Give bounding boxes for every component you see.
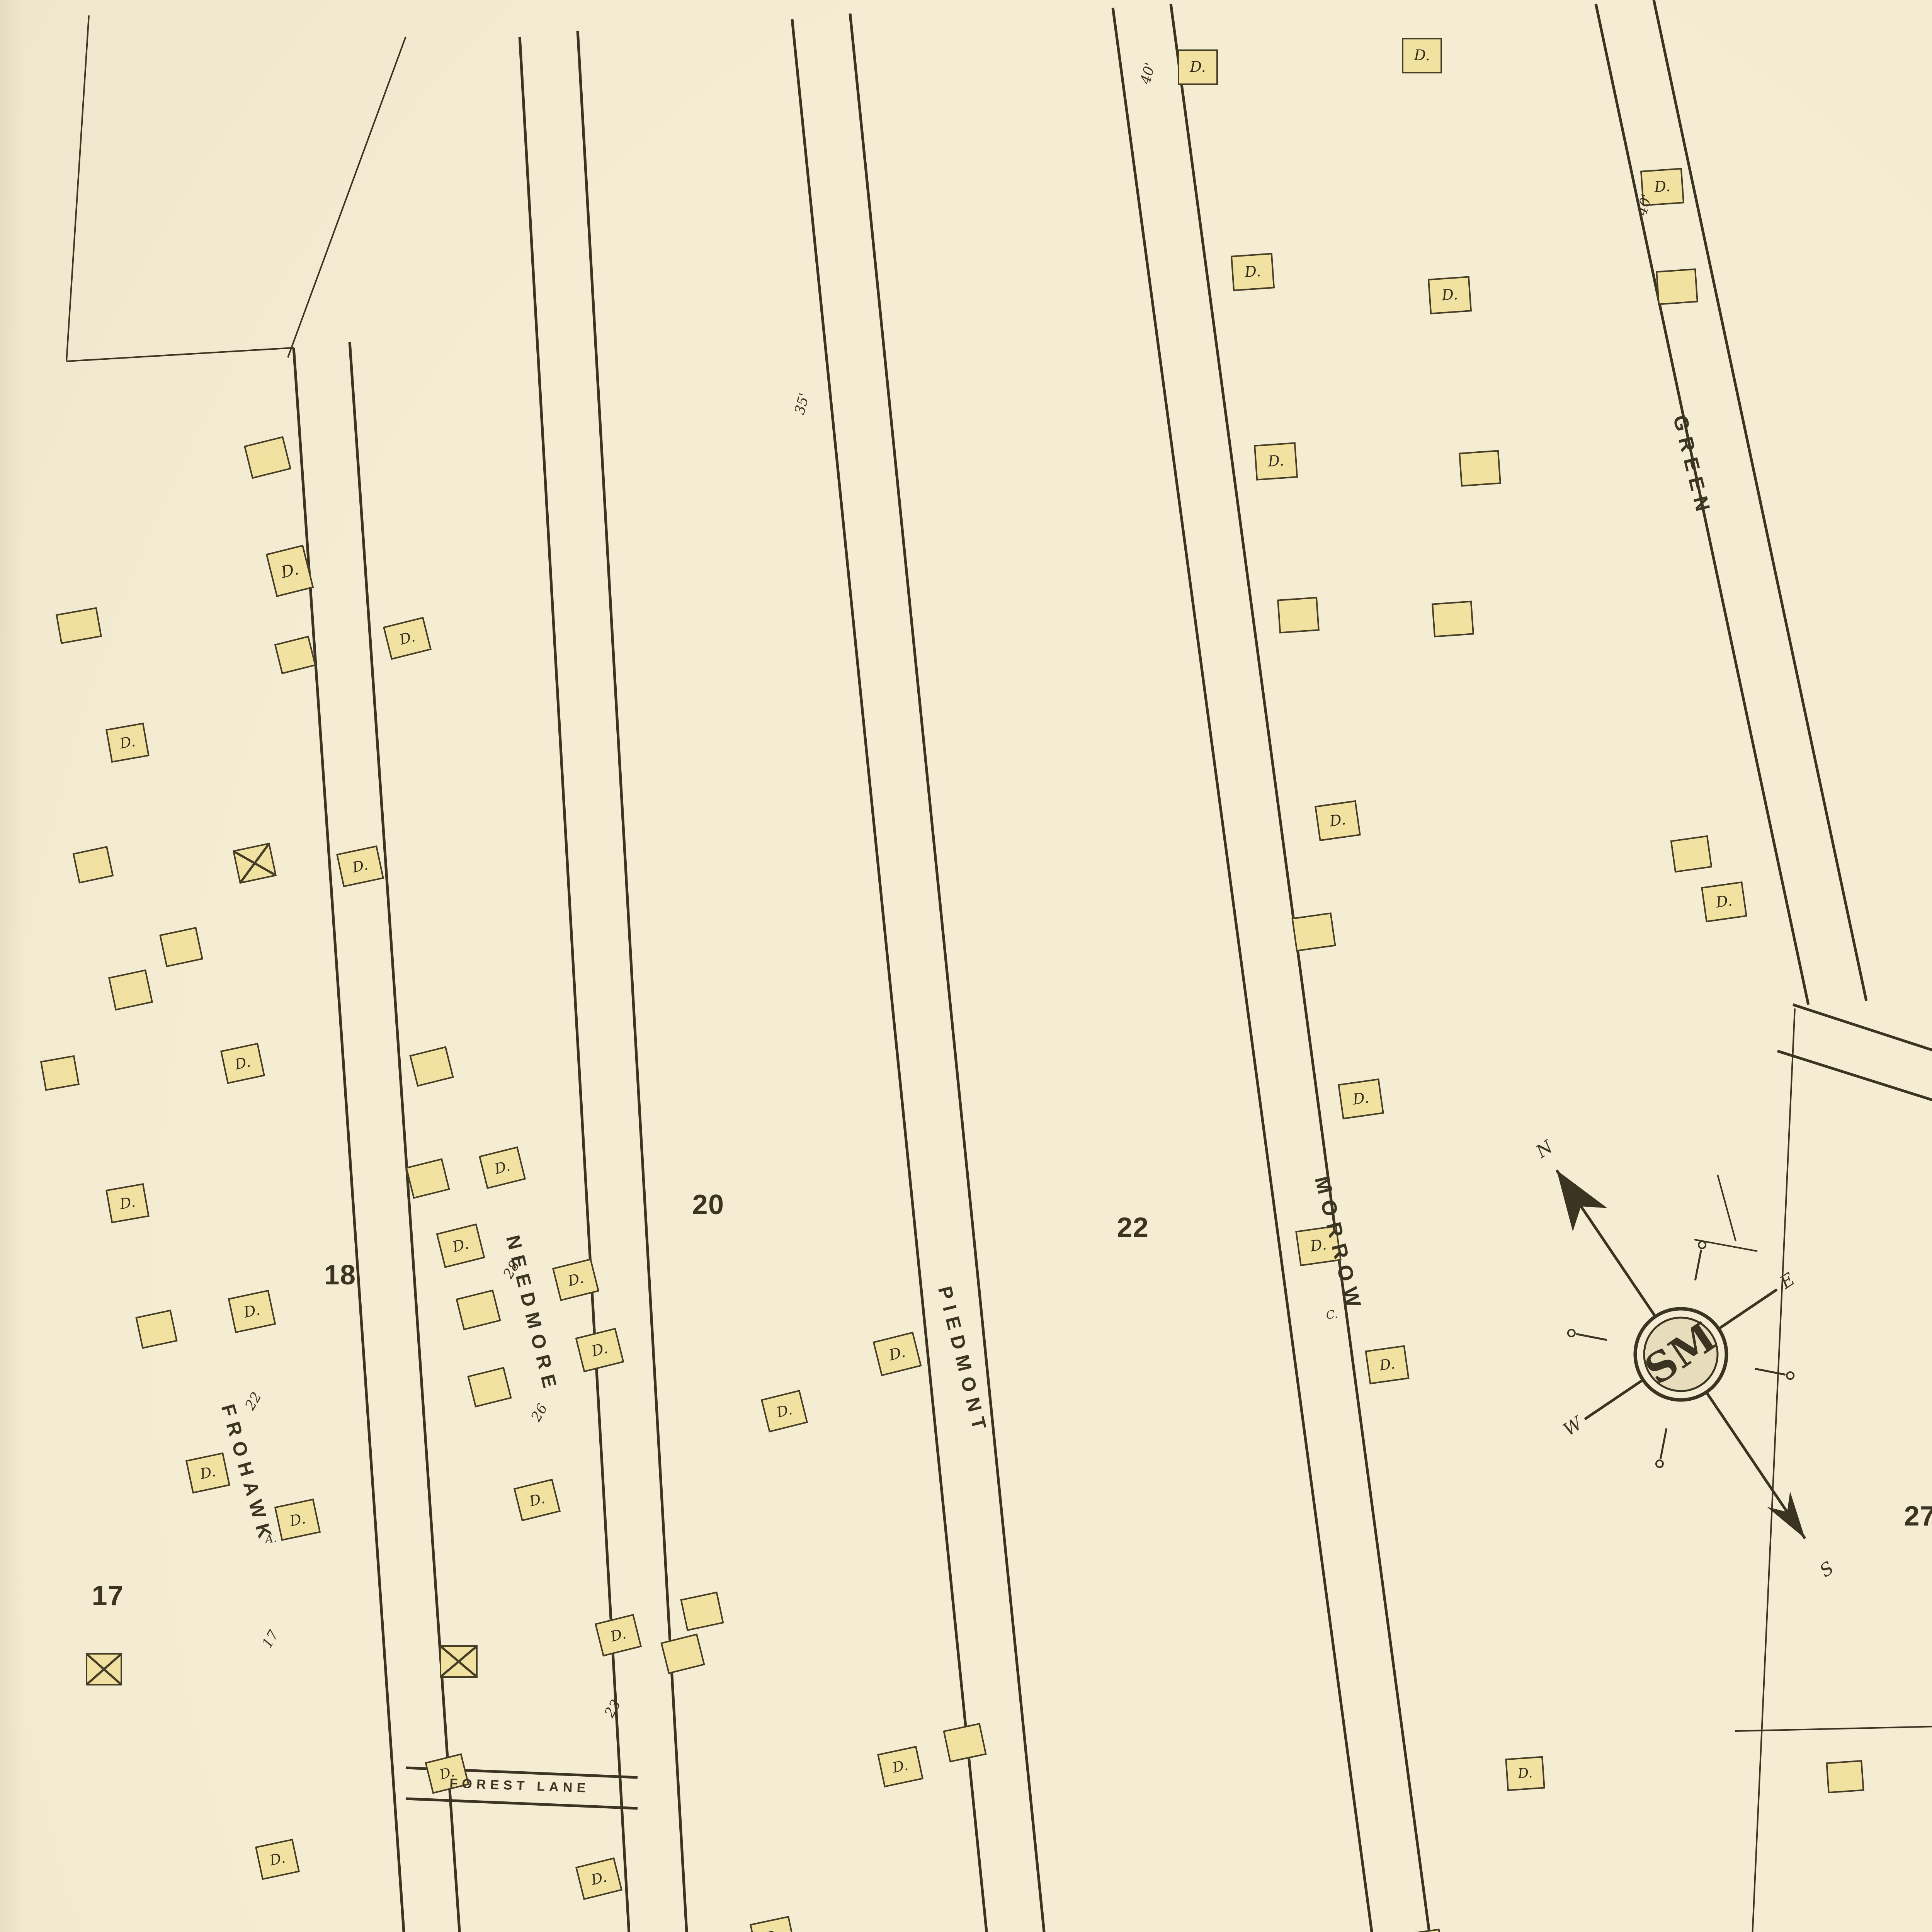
compass-rose-icon: SM N S E W: [0, 0, 1932, 1932]
compass-west-label: W: [1559, 1412, 1587, 1440]
compass-south-label: S: [1816, 1557, 1837, 1581]
compass-east-label: E: [1776, 1269, 1798, 1293]
compass-north-label: N: [1532, 1136, 1557, 1162]
sanborn-map-sheet: D.D.D.D.D.D.D.D.D.D.S.D.D.D.D.D.D.D.D.S.…: [0, 0, 1932, 1932]
